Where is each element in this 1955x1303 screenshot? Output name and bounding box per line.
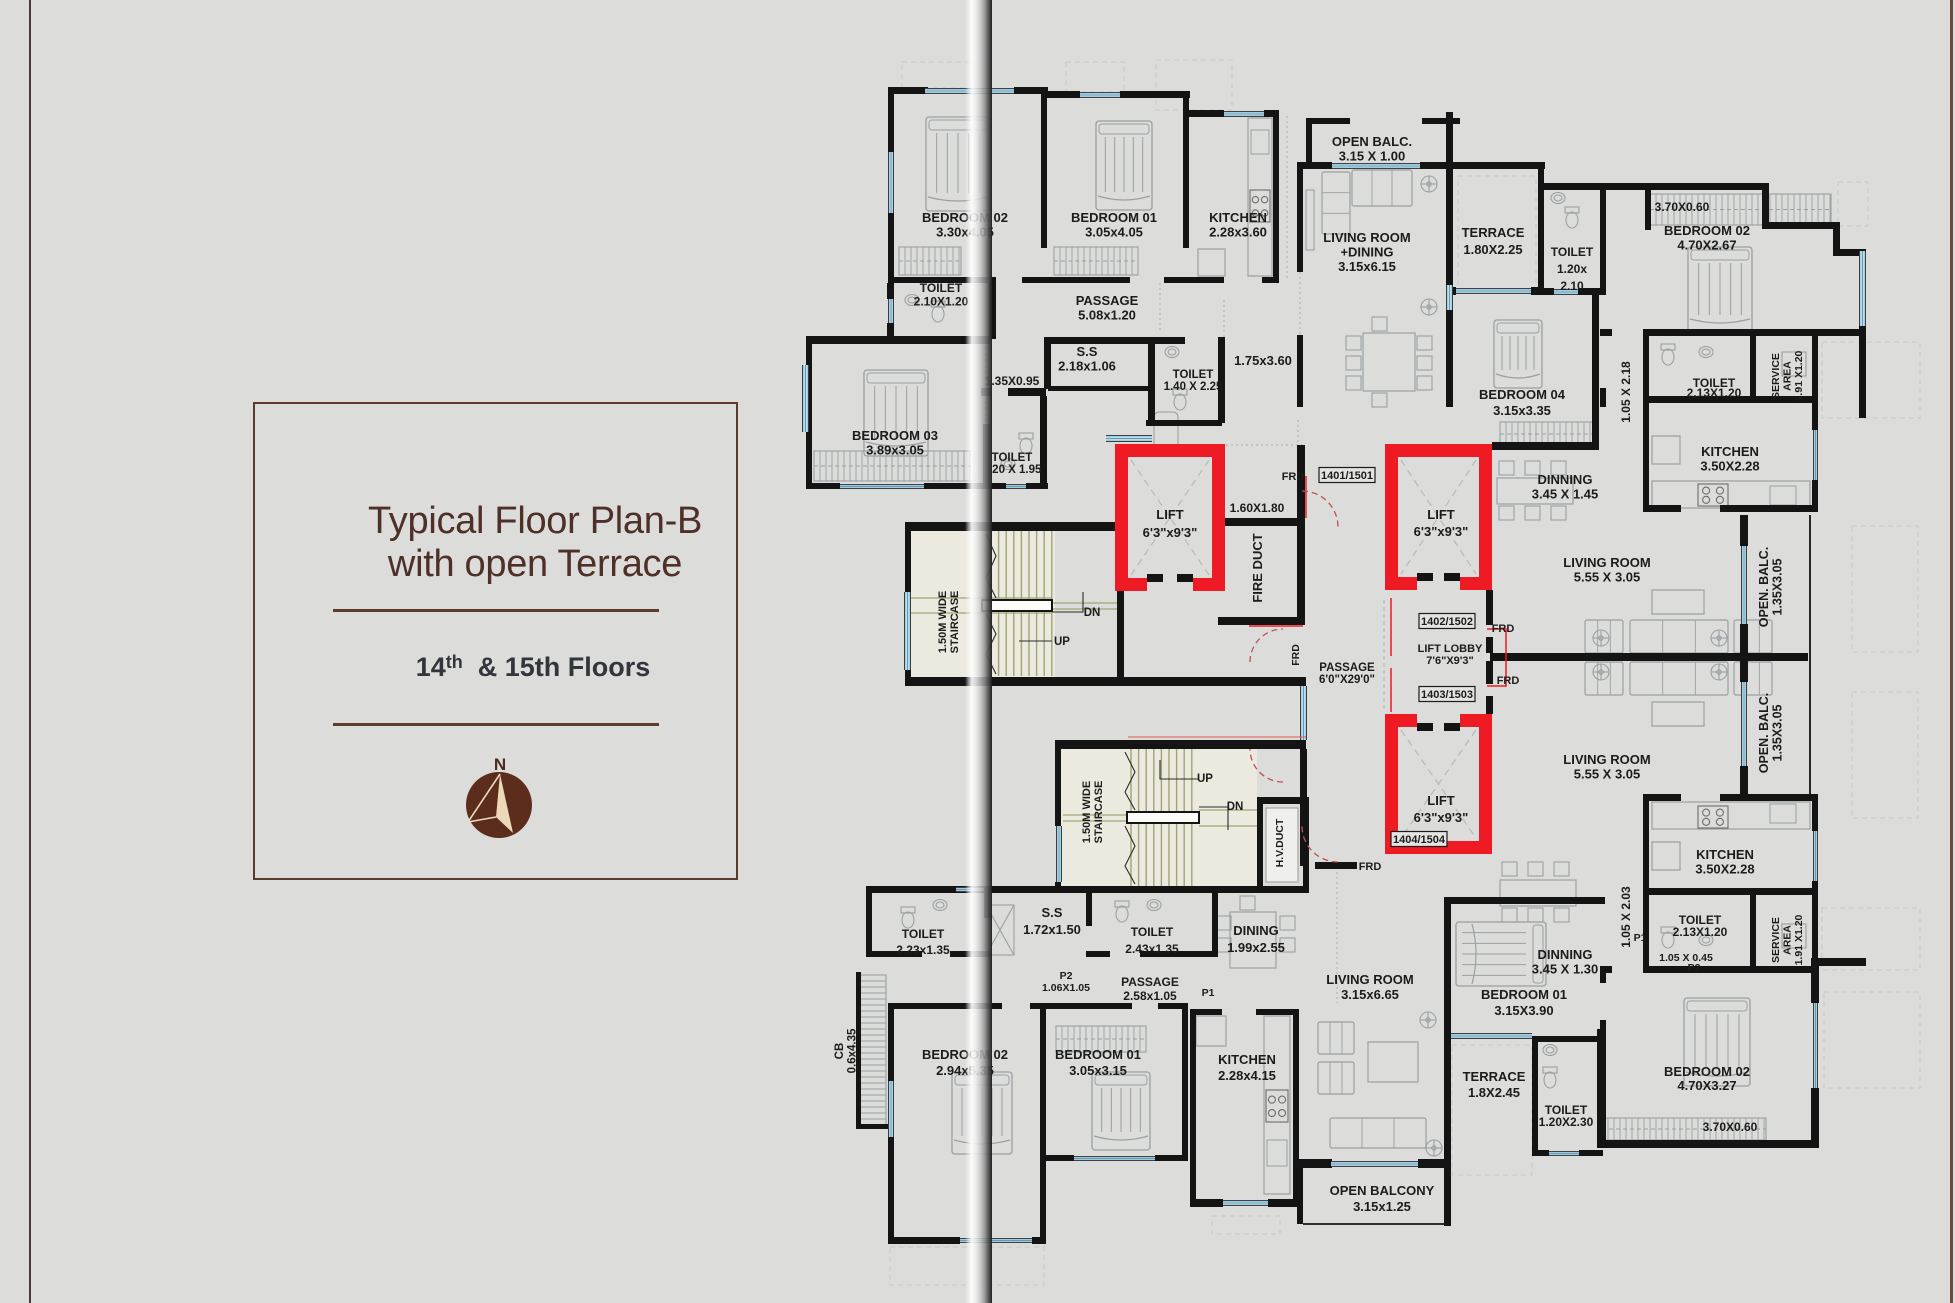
svg-text:6'3"x9'3": 6'3"x9'3" [1414,524,1469,539]
svg-text:1401/1501: 1401/1501 [1321,470,1373,482]
svg-text:OPEN BALC.: OPEN BALC. [1332,134,1412,149]
svg-text:3.89x3.05: 3.89x3.05 [866,443,924,458]
svg-text:3.45 X 1.30: 3.45 X 1.30 [1532,962,1599,977]
svg-text:1.60X1.80: 1.60X1.80 [1230,501,1285,515]
svg-text:DN: DN [1084,607,1101,619]
svg-text:5.08x1.20: 5.08x1.20 [1078,308,1136,323]
svg-text:STAIRCASE: STAIRCASE [949,591,961,654]
svg-text:3.05x4.05: 3.05x4.05 [1085,225,1143,240]
svg-text:3.15x6.65: 3.15x6.65 [1341,987,1399,1002]
svg-text:TOILET: TOILET [902,927,945,941]
svg-text:1.99x2.55: 1.99x2.55 [1227,940,1285,955]
svg-text:1.05 X 2.18: 1.05 X 2.18 [1619,361,1633,423]
svg-text:3.50X2.28: 3.50X2.28 [1695,862,1754,877]
svg-text:1.05 X 2.03: 1.05 X 2.03 [1619,886,1633,948]
svg-text:P2: P2 [1060,970,1073,982]
svg-text:DINING: DINING [1233,923,1279,938]
svg-text:DINNING: DINNING [1538,947,1593,962]
svg-text:P2: P2 [1688,962,1701,974]
svg-text:TOILET: TOILET [992,452,1033,464]
svg-text:PASSAGE: PASSAGE [1076,293,1139,308]
svg-text:6'3"x9'3": 6'3"x9'3" [1414,810,1469,825]
svg-text:2.18x1.06: 2.18x1.06 [1058,359,1116,374]
svg-text:LIFT: LIFT [1427,507,1454,522]
svg-text:TERRACE: TERRACE [1463,1069,1526,1084]
svg-text:1403/1503: 1403/1503 [1421,689,1473,701]
svg-text:TOILET: TOILET [1131,925,1174,939]
svg-text:LIFT: LIFT [1156,507,1183,522]
svg-text:OPEN. BALC.: OPEN. BALC. [1757,547,1771,628]
svg-text:1.75x3.60: 1.75x3.60 [1234,353,1292,368]
svg-text:6'3"x9'3": 6'3"x9'3" [1143,525,1198,540]
svg-text:LIVING ROOM: LIVING ROOM [1563,555,1650,570]
svg-text:FRD: FRD [1290,644,1302,666]
svg-text:1.50M WIDE: 1.50M WIDE [1081,781,1093,843]
svg-text:3.70X0.60: 3.70X0.60 [1703,1120,1758,1134]
svg-text:1.05 X 0.45: 1.05 X 0.45 [1659,952,1713,964]
svg-text:2.23x1.35: 2.23x1.35 [896,943,950,957]
svg-text:BEDROOM 04: BEDROOM 04 [1479,387,1566,402]
svg-text:AREA: AREA [1782,361,1794,391]
svg-text:P1: P1 [1634,932,1647,944]
svg-text:AREA: AREA [1782,925,1794,955]
svg-text:3.15x6.15: 3.15x6.15 [1338,259,1396,274]
svg-text:2.13X1.20: 2.13X1.20 [1687,386,1742,400]
svg-text:1.80X2.25: 1.80X2.25 [1463,242,1522,257]
svg-text:TOILET: TOILET [1551,245,1594,259]
svg-text:LIFT: LIFT [1427,793,1454,808]
svg-text:PASSAGE: PASSAGE [1121,975,1179,989]
svg-text:2.28x4.15: 2.28x4.15 [1218,1068,1276,1083]
svg-text:BEDROOM 03: BEDROOM 03 [852,428,938,443]
svg-text:+DINING: +DINING [1340,245,1393,260]
svg-text:STAIRCASE: STAIRCASE [1093,781,1105,844]
svg-text:FRD: FRD [1359,861,1382,873]
svg-text:DINNING: DINNING [1538,472,1593,487]
svg-text:2.10X1.20: 2.10X1.20 [914,295,969,309]
svg-text:BEDROOM 01: BEDROOM 01 [1071,210,1157,225]
svg-text:TOILET: TOILET [1173,369,1214,381]
svg-text:1.72x1.50: 1.72x1.50 [1023,922,1081,937]
svg-text:H.V.DUCT: H.V.DUCT [1274,818,1286,867]
svg-text:4.70X2.67: 4.70X2.67 [1677,238,1736,253]
svg-text:3.70X0.60: 3.70X0.60 [1655,200,1710,214]
svg-text:OPEN. BALC.: OPEN. BALC. [1757,693,1771,774]
svg-text:6'0"X29'0": 6'0"X29'0" [1319,674,1375,686]
svg-text:1.91 X1.20: 1.91 X1.20 [1793,350,1805,401]
svg-text:DN: DN [1227,801,1244,813]
svg-text:3.15 X 1.00: 3.15 X 1.00 [1339,149,1406,164]
svg-text:FRD: FRD [1497,675,1520,687]
svg-text:BEDROOM 02: BEDROOM 02 [1664,223,1750,238]
svg-text:3.05x3.15: 3.05x3.15 [1069,1063,1127,1078]
svg-text:N: N [494,755,506,774]
svg-text:BEDROOM 01: BEDROOM 01 [1481,987,1567,1002]
svg-text:KITCHEN: KITCHEN [1696,847,1754,862]
svg-text:FIRE DUCT: FIRE DUCT [1250,533,1265,602]
svg-text:LIFT LOBBY: LIFT LOBBY [1418,643,1483,655]
svg-text:1.8X2.45: 1.8X2.45 [1468,1085,1520,1100]
svg-text:BEDROOM 01: BEDROOM 01 [1055,1047,1141,1062]
svg-text:SERVICE: SERVICE [1770,353,1782,399]
svg-text:UP: UP [1197,773,1213,785]
svg-text:FRD: FRD [1492,623,1515,635]
svg-text:2.13X1.20: 2.13X1.20 [1673,925,1728,939]
svg-text:3.15X3.90: 3.15X3.90 [1494,1003,1553,1018]
svg-text:1.06X1.05: 1.06X1.05 [1042,982,1090,994]
svg-text:3.15x3.35: 3.15x3.35 [1493,403,1551,418]
svg-text:1.35X0.95: 1.35X0.95 [985,374,1040,388]
svg-text:LIVING ROOM: LIVING ROOM [1326,972,1413,987]
svg-text:7'6"X9'3": 7'6"X9'3" [1426,655,1473,667]
svg-text:P1: P1 [1202,987,1215,999]
svg-text:UP: UP [1054,636,1070,648]
svg-text:1.50M WIDE: 1.50M WIDE [937,591,949,653]
svg-text:1402/1502: 1402/1502 [1421,616,1473,628]
svg-text:KITCHEN: KITCHEN [1701,444,1759,459]
svg-text:3.15x1.25: 3.15x1.25 [1353,1199,1411,1214]
svg-text:1.35X3.05: 1.35X3.05 [1771,558,1785,615]
svg-text:2.43x1.35: 2.43x1.35 [1125,942,1179,956]
svg-text:KITCHEN: KITCHEN [1218,1052,1276,1067]
svg-text:1.20x: 1.20x [1557,262,1587,276]
svg-text:2.10: 2.10 [1560,279,1584,293]
svg-text:LIVING ROOM: LIVING ROOM [1563,752,1650,767]
svg-text:S.S: S.S [1042,905,1063,920]
svg-text:LIVING ROOM: LIVING ROOM [1323,230,1410,245]
svg-text:SERVICE: SERVICE [1770,917,1782,963]
svg-text:5.55 X 3.05: 5.55 X 3.05 [1574,570,1641,585]
svg-text:0.6x4.35: 0.6x4.35 [847,1028,859,1073]
svg-text:3.50X2.28: 3.50X2.28 [1700,459,1759,474]
svg-text:KITCHEN: KITCHEN [1209,210,1267,225]
svg-text:4.70X3.27: 4.70X3.27 [1677,1078,1736,1093]
svg-text:CB: CB [834,1043,846,1060]
svg-text:2.58x1.05: 2.58x1.05 [1123,989,1177,1003]
svg-text:3.45 X 1.45: 3.45 X 1.45 [1532,487,1599,502]
svg-text:5.55 X 3.05: 5.55 X 3.05 [1574,767,1641,782]
svg-text:1.40 X 2.25: 1.40 X 2.25 [1164,381,1223,393]
svg-text:FRD: FRD [1282,471,1305,483]
svg-text:OPEN BALCONY: OPEN BALCONY [1330,1183,1435,1198]
svg-text:BEDROOM 02: BEDROOM 02 [1664,1064,1750,1079]
svg-text:PASSAGE: PASSAGE [1319,662,1375,674]
svg-text:TERRACE: TERRACE [1462,225,1525,240]
svg-text:1.91 X1.20: 1.91 X1.20 [1793,914,1805,965]
svg-text:TOILET: TOILET [920,281,963,295]
svg-text:2.28x3.60: 2.28x3.60 [1209,225,1267,240]
svg-text:1.20X2.30: 1.20X2.30 [1539,1115,1594,1129]
svg-text:S.S: S.S [1077,344,1098,359]
svg-text:1.35X3.05: 1.35X3.05 [1771,704,1785,761]
svg-text:1404/1504: 1404/1504 [1393,834,1446,846]
